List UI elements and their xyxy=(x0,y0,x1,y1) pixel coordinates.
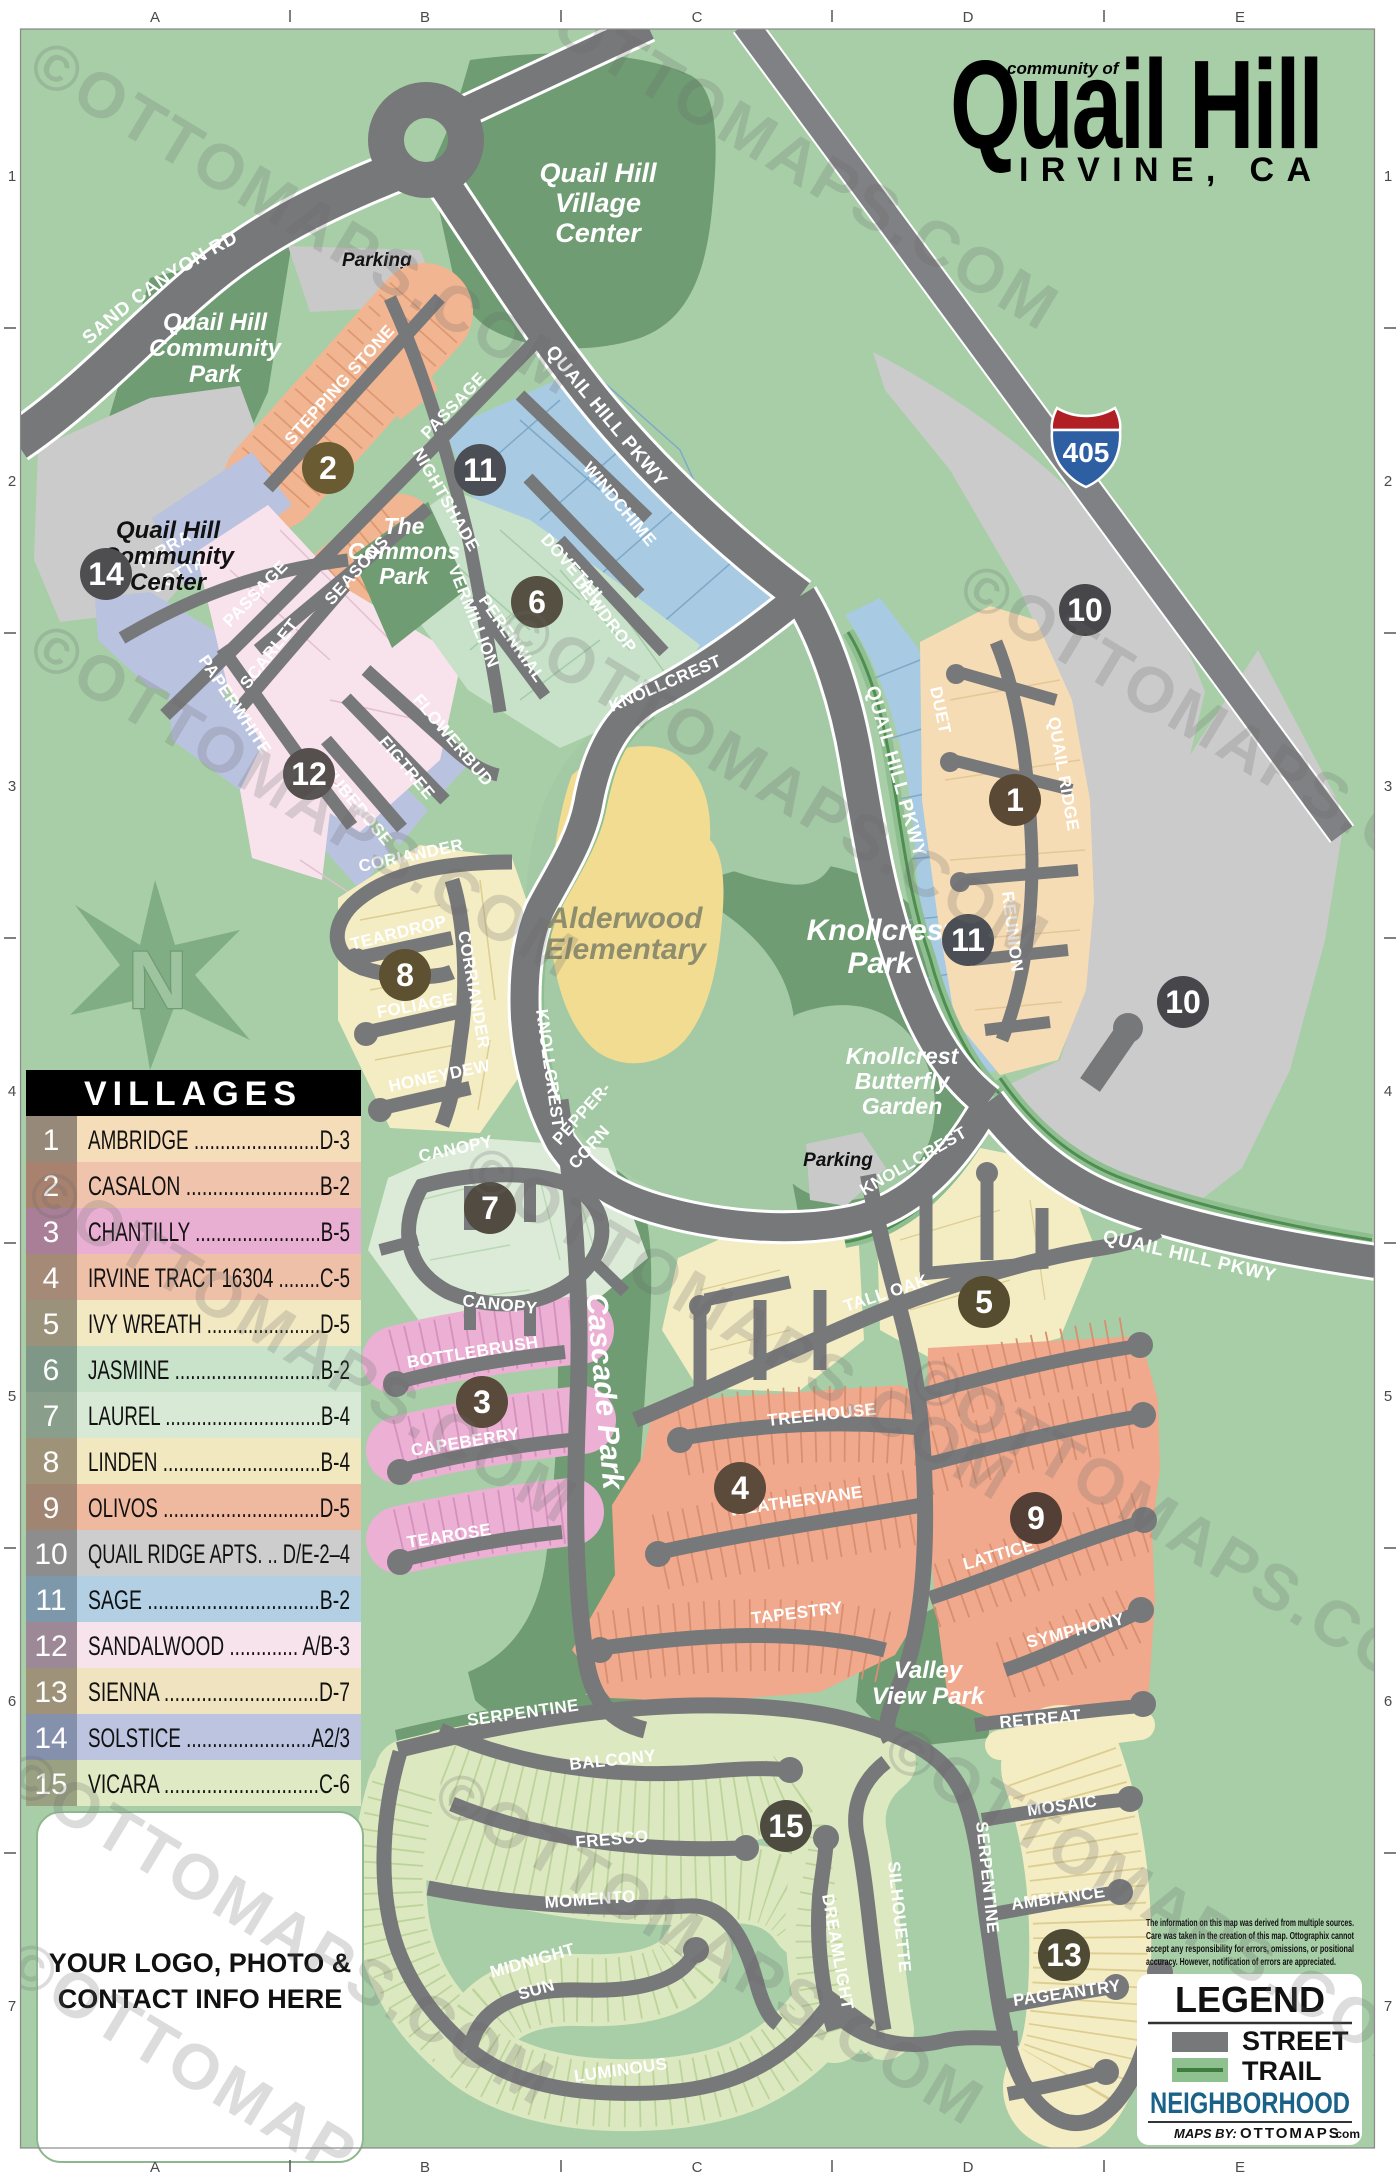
svg-text:D: D xyxy=(963,2159,974,2176)
svg-text:A: A xyxy=(150,9,160,26)
svg-text:12: 12 xyxy=(34,1630,67,1663)
svg-text:3: 3 xyxy=(8,778,16,795)
svg-text:TRAIL: TRAIL xyxy=(1242,2056,1321,2086)
svg-text:5: 5 xyxy=(43,1308,60,1341)
svg-text:7: 7 xyxy=(1384,1998,1392,2015)
svg-text:D: D xyxy=(963,9,974,26)
svg-text:Commons: Commons xyxy=(348,538,460,564)
svg-text:9: 9 xyxy=(43,1492,60,1525)
svg-text:1: 1 xyxy=(1384,168,1392,185)
svg-text:4: 4 xyxy=(1384,1083,1392,1100)
svg-text:11: 11 xyxy=(463,452,497,488)
svg-text:5: 5 xyxy=(975,1284,993,1320)
svg-text:E: E xyxy=(1235,9,1245,26)
svg-text:A: A xyxy=(150,2159,160,2176)
svg-text:Village: Village xyxy=(555,188,641,218)
svg-text:Quail Hill: Quail Hill xyxy=(539,158,657,188)
svg-text:Garden: Garden xyxy=(862,1093,943,1119)
svg-text:OTTOMAPS: OTTOMAPS xyxy=(1240,2125,1341,2142)
svg-text:4: 4 xyxy=(8,1083,16,1100)
svg-text:LAUREL .......................: LAUREL ..............................B-4 xyxy=(88,1401,350,1431)
svg-text:MAPS BY:: MAPS BY: xyxy=(1174,2126,1237,2141)
svg-text:Park: Park xyxy=(189,361,243,388)
svg-text:1: 1 xyxy=(1006,782,1024,818)
svg-text:OLIVOS .......................: OLIVOS ..............................D-5 xyxy=(88,1493,350,1523)
svg-text:CASALON .....................: CASALON .........................B-2 xyxy=(88,1171,350,1201)
svg-text:The: The xyxy=(384,513,425,539)
svg-text:2: 2 xyxy=(8,473,16,490)
svg-text:4: 4 xyxy=(43,1262,60,1295)
svg-text:B: B xyxy=(420,9,430,26)
svg-text:5: 5 xyxy=(8,1388,16,1405)
svg-text:5: 5 xyxy=(1384,1388,1392,1405)
svg-text:6: 6 xyxy=(8,1693,16,1710)
svg-text:7: 7 xyxy=(8,1998,16,2015)
svg-text:SIENNA ......................: SIENNA .............................D-7 xyxy=(88,1677,350,1707)
svg-text:Quail Hill: Quail Hill xyxy=(116,517,221,544)
svg-text:E: E xyxy=(1235,2159,1245,2176)
svg-text:6: 6 xyxy=(43,1354,60,1387)
svg-text:7: 7 xyxy=(43,1400,60,1433)
svg-text:Center: Center xyxy=(555,218,642,248)
svg-text:2: 2 xyxy=(319,450,337,486)
svg-text:8: 8 xyxy=(396,957,414,993)
svg-text:6: 6 xyxy=(1384,1693,1392,1710)
svg-text:Community: Community xyxy=(149,335,283,362)
svg-text:1: 1 xyxy=(43,1124,60,1157)
svg-text:Knollcrest: Knollcrest xyxy=(846,1043,960,1069)
svg-text:14: 14 xyxy=(88,556,124,592)
svg-text:13: 13 xyxy=(34,1676,67,1709)
svg-text:SOLSTICE ....................: SOLSTICE ........................A2/3 xyxy=(88,1723,350,1753)
svg-text:Park: Park xyxy=(379,563,430,589)
svg-text:Butterfly: Butterfly xyxy=(855,1068,951,1094)
svg-text:2: 2 xyxy=(1384,473,1392,490)
svg-text:AMBRIDGE ....................: AMBRIDGE ........................D-3 xyxy=(88,1125,350,1155)
svg-text:15: 15 xyxy=(768,1808,804,1844)
svg-text:10: 10 xyxy=(1165,984,1201,1020)
svg-text:13: 13 xyxy=(1046,1937,1082,1973)
svg-text:405: 405 xyxy=(1063,437,1110,468)
svg-text:C: C xyxy=(692,2159,703,2176)
svg-text:C: C xyxy=(692,9,703,26)
svg-text:10: 10 xyxy=(34,1538,67,1571)
svg-text:N: N xyxy=(128,935,187,1026)
svg-text:LINDEN ......................: LINDEN ..............................B-4 xyxy=(88,1447,350,1477)
svg-text:SANDALWOOD ............. A/B-: SANDALWOOD ............. A/B-3 xyxy=(88,1631,350,1661)
svg-text:Park: Park xyxy=(847,947,913,980)
svg-text:Center: Center xyxy=(130,569,208,596)
svg-text:Valley: Valley xyxy=(894,1657,964,1684)
svg-text:QUAIL RIDGE APTS. .. D/E-2–4: QUAIL RIDGE APTS. .. D/E-2–4 xyxy=(88,1539,350,1569)
svg-text:9: 9 xyxy=(1027,1500,1045,1536)
svg-text:View Park: View Park xyxy=(872,1683,986,1710)
svg-text:NEIGHBORHOOD: NEIGHBORHOOD xyxy=(1150,2087,1350,2120)
svg-text:Parking: Parking xyxy=(803,1150,873,1171)
svg-text:11: 11 xyxy=(35,1584,66,1617)
svg-text:8: 8 xyxy=(43,1446,60,1479)
svg-text:SAGE ........................: SAGE ................................B-2 xyxy=(88,1585,350,1615)
svg-text:VILLAGES: VILLAGES xyxy=(84,1075,302,1113)
svg-text:.com: .com xyxy=(1332,2127,1360,2141)
svg-text:1: 1 xyxy=(8,168,16,185)
svg-text:Quail Hill: Quail Hill xyxy=(163,309,268,336)
svg-text:4: 4 xyxy=(731,1470,749,1506)
svg-text:B: B xyxy=(420,2159,430,2176)
svg-text:3: 3 xyxy=(1384,778,1392,795)
